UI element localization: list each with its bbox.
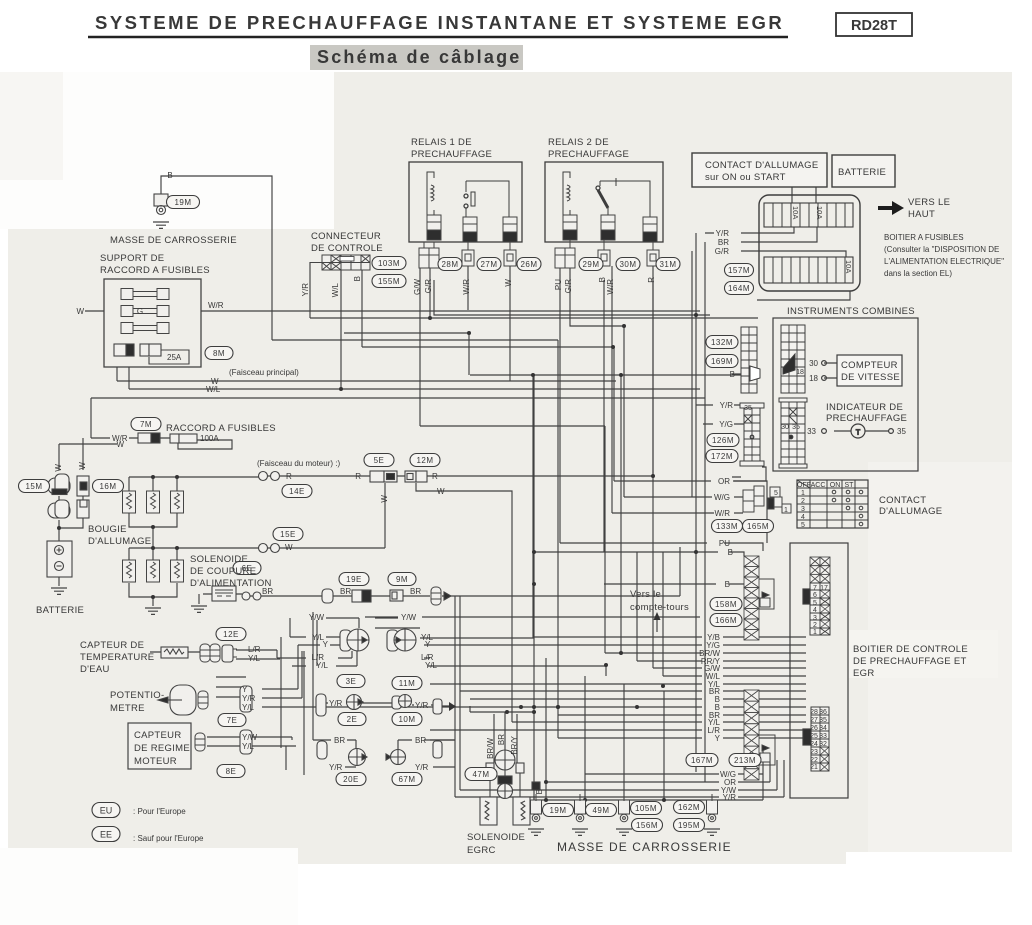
svg-text:R: R [286, 472, 292, 481]
svg-text:6: 6 [813, 592, 817, 599]
svg-text:R: R [432, 472, 438, 481]
svg-text:SYSTEME DE PRECHAUFFAGE INSTAN: SYSTEME DE PRECHAUFFAGE INSTANTANE ET SY… [95, 12, 784, 33]
svg-text:132M: 132M [711, 338, 733, 347]
svg-text:L'ALIMENTATION ELECTRIQUE": L'ALIMENTATION ELECTRIQUE" [884, 257, 1004, 266]
svg-text:BR: BR [410, 587, 421, 596]
svg-text:27: 27 [810, 717, 818, 724]
svg-text:: Sauf pour l'Europe: : Sauf pour l'Europe [133, 834, 204, 843]
svg-text:CAPTEUR DE: CAPTEUR DE [80, 640, 144, 651]
svg-text:22: 22 [810, 757, 818, 764]
svg-text:35: 35 [897, 427, 906, 436]
svg-text:18: 18 [796, 369, 804, 376]
svg-text:W: W [437, 487, 445, 496]
svg-text:INSTRUMENTS COMBINES: INSTRUMENTS COMBINES [787, 306, 915, 317]
svg-text:BOITIER DE CONTROLE: BOITIER DE CONTROLE [853, 644, 968, 655]
svg-text:L/R: L/R [248, 645, 261, 654]
svg-text:CONTACT: CONTACT [879, 495, 926, 506]
svg-text:164M: 164M [728, 284, 750, 293]
svg-text:8E: 8E [226, 767, 237, 776]
svg-text:4: 4 [801, 514, 805, 521]
svg-text:Y/G: Y/G [719, 420, 733, 429]
svg-text:10A: 10A [815, 206, 824, 219]
svg-text:(Consulter la "DISPOSITION DE: (Consulter la "DISPOSITION DE [884, 245, 999, 254]
svg-text:Vers le: Vers le [630, 589, 661, 600]
svg-text:DE COUPURE: DE COUPURE [190, 566, 256, 577]
svg-text:B: B [353, 276, 362, 281]
svg-text:17: 17 [820, 585, 828, 592]
svg-text:213M: 213M [734, 756, 756, 765]
svg-text:10A: 10A [844, 260, 853, 273]
svg-text:1: 1 [801, 490, 805, 497]
svg-text:47M: 47M [472, 770, 489, 779]
svg-text:Y/W: Y/W [309, 613, 325, 622]
svg-text:POTENTIO-: POTENTIO- [110, 690, 164, 701]
svg-text:5: 5 [813, 600, 817, 607]
svg-text:10A: 10A [791, 206, 800, 219]
svg-text:BR: BR [718, 238, 729, 247]
svg-text:162M: 162M [678, 803, 700, 812]
svg-text:172M: 172M [711, 452, 733, 461]
svg-text:D'ALLUMAGE: D'ALLUMAGE [88, 536, 151, 547]
svg-text:G/R: G/R [564, 279, 573, 293]
svg-text:(Faisceau du moteur) :): (Faisceau du moteur) :) [257, 459, 340, 468]
svg-text:Y: Y [715, 734, 721, 743]
svg-text:CONTACT D'ALLUMAGE: CONTACT D'ALLUMAGE [705, 160, 819, 171]
svg-text:W: W [76, 307, 84, 316]
svg-text:35: 35 [792, 424, 800, 431]
svg-text:20E: 20E [343, 775, 359, 784]
svg-text:165M: 165M [747, 522, 769, 531]
svg-text:W/R: W/R [606, 279, 615, 295]
svg-text:DE REGIME: DE REGIME [134, 743, 190, 754]
svg-text:B: B [725, 580, 730, 589]
svg-text:195M: 195M [678, 821, 700, 830]
svg-text:HAUT: HAUT [908, 209, 935, 220]
svg-text:Y/W: Y/W [401, 613, 417, 622]
svg-text:26M: 26M [520, 260, 537, 269]
svg-text:Schéma de câblage: Schéma de câblage [317, 47, 521, 67]
svg-text:DE PRECHAUFFAGE ET: DE PRECHAUFFAGE ET [853, 656, 967, 667]
svg-text:BR: BR [262, 587, 273, 596]
svg-text:7M: 7M [140, 420, 152, 429]
svg-text:156M: 156M [636, 821, 658, 830]
svg-text:D'ALIMENTATION: D'ALIMENTATION [190, 578, 272, 589]
svg-text:B: B [730, 370, 735, 379]
svg-text:W: W [116, 440, 124, 449]
svg-text:3E: 3E [346, 677, 357, 686]
svg-text:Y/W: Y/W [242, 733, 258, 742]
svg-text:W: W [504, 279, 513, 287]
svg-text:T: T [856, 430, 861, 437]
svg-text:INDICATEUR DE: INDICATEUR DE [826, 402, 903, 413]
svg-text:23: 23 [810, 749, 818, 756]
svg-text:7E: 7E [227, 716, 238, 725]
svg-text:PRECHAUFFAGE: PRECHAUFFAGE [548, 149, 629, 160]
svg-text:10M: 10M [398, 715, 415, 724]
svg-text:R: R [647, 277, 656, 283]
svg-text:35: 35 [819, 717, 827, 724]
svg-text:EE: EE [100, 830, 112, 840]
svg-text:PRECHAUFFAGE: PRECHAUFFAGE [826, 413, 907, 424]
svg-text:W: W [78, 462, 87, 470]
svg-text:BR/Y: BR/Y [510, 735, 519, 754]
svg-text:BOITIER A FUSIBLES: BOITIER A FUSIBLES [884, 233, 964, 242]
svg-text:9M: 9M [396, 575, 408, 584]
svg-text:W/G: W/G [714, 493, 730, 502]
svg-text:EGRC: EGRC [467, 845, 496, 856]
svg-text:49M: 49M [592, 806, 609, 815]
svg-text:12M: 12M [416, 456, 433, 465]
svg-text:R: R [355, 472, 361, 481]
svg-text:BR: BR [340, 587, 351, 596]
svg-text:W: W [285, 543, 293, 552]
svg-text:BATTERIE: BATTERIE [36, 605, 84, 616]
svg-text:16M: 16M [99, 482, 116, 491]
svg-text:11M: 11M [399, 679, 415, 688]
svg-text:BATTERIE: BATTERIE [838, 167, 886, 178]
svg-text:W/R: W/R [462, 279, 471, 295]
svg-text:CAPTEUR: CAPTEUR [134, 730, 182, 741]
svg-text:155M: 155M [378, 277, 400, 286]
svg-text:167M: 167M [691, 756, 713, 765]
svg-text:33: 33 [807, 427, 816, 436]
svg-text:36: 36 [819, 709, 827, 716]
svg-text:Y/R: Y/R [720, 401, 734, 410]
svg-text:19M: 19M [549, 806, 566, 815]
svg-text:25A: 25A [167, 353, 182, 362]
svg-text:4: 4 [813, 607, 817, 614]
svg-text:15E: 15E [280, 530, 296, 539]
svg-text:G: G [137, 307, 143, 316]
svg-text:DE CONTROLE: DE CONTROLE [311, 243, 383, 254]
svg-text:1: 1 [784, 507, 788, 514]
svg-text:PRECHAUFFAGE: PRECHAUFFAGE [411, 149, 492, 160]
svg-text:dans la section EL): dans la section EL) [884, 269, 952, 278]
svg-text:8M: 8M [213, 349, 225, 358]
svg-text:OFF: OFF [797, 482, 811, 489]
svg-text:B: B [535, 789, 544, 794]
svg-text:Y/L: Y/L [242, 742, 255, 751]
svg-text:Y/L: Y/L [316, 661, 329, 670]
svg-text:158M: 158M [715, 600, 737, 609]
svg-text:ST: ST [845, 482, 855, 489]
svg-text:24: 24 [810, 741, 818, 748]
svg-text:D'ALLUMAGE: D'ALLUMAGE [879, 506, 942, 517]
svg-text:25: 25 [810, 733, 818, 740]
svg-text:19E: 19E [346, 575, 362, 584]
svg-text:Y/R: Y/R [329, 763, 343, 772]
svg-text:ACC: ACC [811, 482, 826, 489]
svg-text:SUPPORT DE: SUPPORT DE [100, 253, 164, 264]
svg-text:Y/L: Y/L [425, 661, 438, 670]
svg-text:METRE: METRE [110, 703, 145, 714]
svg-text:27M: 27M [480, 260, 497, 269]
svg-text:Y: Y [242, 685, 248, 694]
svg-text:Y/R: Y/R [242, 694, 256, 703]
svg-text:W: W [54, 464, 63, 472]
svg-text:VERS LE: VERS LE [908, 197, 950, 208]
svg-text:2: 2 [801, 498, 805, 505]
svg-text:18: 18 [809, 374, 818, 383]
svg-text:Y: Y [425, 640, 431, 649]
svg-text:W/R: W/R [208, 301, 224, 310]
svg-text:3: 3 [813, 615, 817, 622]
svg-text:RACCORD A FUSIBLES: RACCORD A FUSIBLES [100, 265, 210, 276]
svg-text:MASSE DE CARROSSERIE: MASSE DE CARROSSERIE [110, 235, 237, 246]
svg-text:32: 32 [819, 741, 827, 748]
svg-text:12E: 12E [223, 630, 239, 639]
svg-text:2E: 2E [347, 715, 358, 724]
svg-text:EGR: EGR [853, 668, 875, 679]
svg-text:DE VITESSE: DE VITESSE [841, 372, 900, 383]
svg-text:Y/L: Y/L [248, 654, 261, 663]
svg-text:W/L: W/L [331, 282, 340, 297]
svg-text:15M: 15M [25, 482, 42, 491]
svg-text:EU: EU [100, 806, 113, 816]
svg-text:33: 33 [819, 733, 827, 740]
svg-text:Y: Y [323, 640, 329, 649]
svg-text:BR: BR [497, 734, 506, 745]
svg-text:31M: 31M [659, 260, 676, 269]
svg-text:5: 5 [774, 490, 778, 497]
svg-text:126M: 126M [712, 436, 734, 445]
svg-text:5E: 5E [374, 456, 385, 465]
svg-text:28M: 28M [441, 260, 458, 269]
svg-text:SOLENOIDE: SOLENOIDE [467, 832, 525, 843]
svg-text:TEMPERATURE: TEMPERATURE [80, 652, 154, 663]
svg-text:30: 30 [781, 424, 789, 431]
svg-text:RELAIS 2 DE: RELAIS 2 DE [548, 137, 609, 148]
svg-text:21: 21 [810, 764, 818, 771]
svg-text:BOUGIE: BOUGIE [88, 524, 127, 535]
svg-text:RELAIS 1 DE: RELAIS 1 DE [411, 137, 472, 148]
svg-text:2: 2 [813, 622, 817, 629]
svg-text:CONNECTEUR: CONNECTEUR [311, 231, 381, 242]
svg-text:Y/L: Y/L [242, 703, 255, 712]
svg-text:COMPTEUR: COMPTEUR [841, 360, 898, 371]
svg-text:RD28T: RD28T [851, 18, 897, 34]
svg-text:Y/R: Y/R [301, 283, 310, 297]
svg-text:PU: PU [554, 279, 563, 290]
svg-text:W/R: W/R [714, 509, 730, 518]
svg-text:Y/R: Y/R [415, 763, 429, 772]
svg-text:SOLENOIDE: SOLENOIDE [190, 554, 248, 565]
svg-text:: Pour l'Europe: : Pour l'Europe [133, 807, 186, 816]
svg-text:30M: 30M [619, 260, 636, 269]
svg-text:BR: BR [334, 736, 345, 745]
svg-text:MOTEUR: MOTEUR [134, 756, 177, 767]
svg-text:W: W [380, 495, 389, 503]
svg-text:35: 35 [744, 405, 752, 412]
svg-text:(Faisceau principal): (Faisceau principal) [229, 368, 299, 377]
svg-text:100A: 100A [200, 434, 219, 443]
svg-text:PU: PU [719, 539, 730, 548]
svg-text:166M: 166M [715, 616, 737, 625]
svg-text:sur ON ou START: sur ON ou START [705, 172, 786, 183]
svg-text:157M: 157M [728, 266, 750, 275]
svg-text:105M: 105M [635, 804, 657, 813]
svg-text:G/R: G/R [715, 247, 729, 256]
svg-text:BR/W: BR/W [486, 738, 495, 759]
svg-text:BR: BR [415, 736, 426, 745]
svg-text:G/R: G/R [424, 279, 433, 293]
svg-text:RACCORD A FUSIBLES: RACCORD A FUSIBLES [166, 423, 276, 434]
svg-text:34: 34 [819, 725, 827, 732]
svg-text:7: 7 [813, 585, 817, 592]
svg-text:Y/R: Y/R [329, 699, 343, 708]
svg-text:B: B [728, 548, 733, 557]
svg-text:1: 1 [813, 629, 817, 636]
svg-text:compte-tours: compte-tours [630, 602, 689, 613]
svg-text:30: 30 [809, 359, 818, 368]
svg-text:67M: 67M [398, 775, 415, 784]
svg-text:W/L: W/L [206, 385, 221, 394]
svg-text:133M: 133M [716, 522, 738, 531]
svg-text:Y/R: Y/R [723, 793, 737, 802]
svg-text:103M: 103M [378, 259, 400, 268]
svg-text:3: 3 [801, 506, 805, 513]
svg-text:MASSE DE CARROSSERIE: MASSE DE CARROSSERIE [557, 840, 732, 854]
svg-text:B: B [167, 171, 172, 180]
svg-text:26: 26 [810, 725, 818, 732]
svg-text:D'EAU: D'EAU [80, 664, 110, 675]
svg-text:G/W: G/W [413, 279, 422, 295]
svg-text:14E: 14E [289, 487, 305, 496]
svg-text:29M: 29M [582, 260, 599, 269]
svg-text:5: 5 [801, 522, 805, 529]
svg-text:Y/R: Y/R [716, 229, 730, 238]
svg-text:ON: ON [830, 482, 841, 489]
svg-text:19M: 19M [174, 198, 191, 207]
svg-text:28: 28 [810, 709, 818, 716]
svg-text:169M: 169M [711, 357, 733, 366]
svg-text:Y/R: Y/R [415, 701, 429, 710]
svg-text:OR: OR [718, 477, 730, 486]
